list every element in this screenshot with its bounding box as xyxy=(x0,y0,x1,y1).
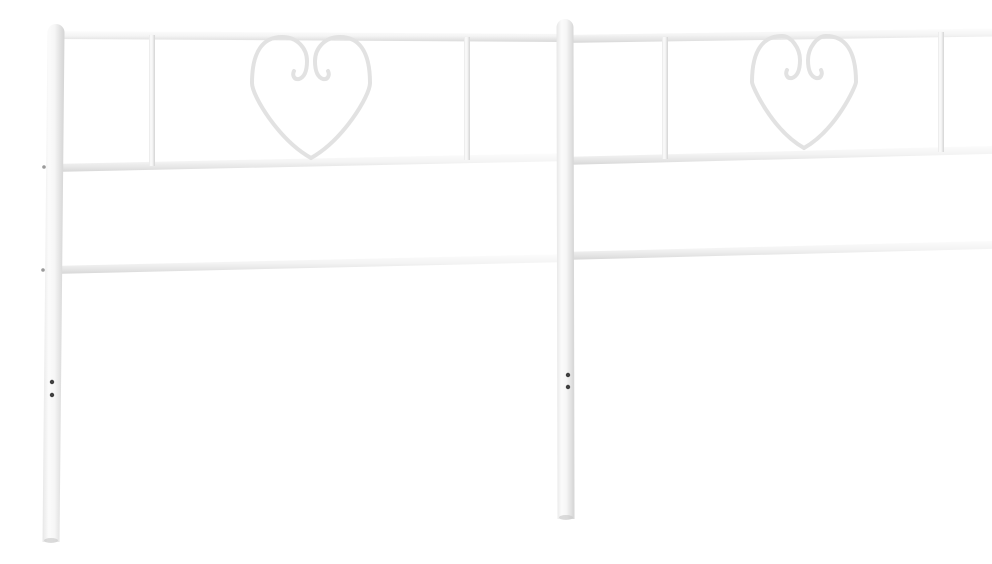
center-post-foot-shadow xyxy=(559,515,573,520)
middle-rail-right-section xyxy=(561,145,992,165)
left-post-rail-bolt-middle xyxy=(42,165,46,169)
left-post xyxy=(43,24,65,542)
bottom-rail-left-section xyxy=(51,254,570,274)
right-section-baluster-1 xyxy=(662,37,668,159)
right-heart-scroll xyxy=(752,36,856,148)
left-section-baluster-1 xyxy=(149,35,155,166)
right-section-baluster-2 xyxy=(938,32,944,152)
product-photo-headboard xyxy=(40,16,992,548)
headboard-illustration xyxy=(40,16,992,548)
center-post xyxy=(557,19,575,519)
left-post-foot-shadow xyxy=(44,538,58,543)
center-post-bolt-lower xyxy=(566,385,570,389)
left-heart-scroll xyxy=(252,37,370,158)
left-post-rail-bolt-bottom xyxy=(41,268,45,272)
top-rail-left-section xyxy=(53,31,570,42)
center-post-bolt-upper xyxy=(566,373,570,377)
bottom-rail-right-section xyxy=(561,240,992,260)
left-post-bolt-lower xyxy=(50,393,54,397)
left-post-bolt-upper xyxy=(50,380,54,384)
left-section-baluster-2 xyxy=(464,37,470,160)
